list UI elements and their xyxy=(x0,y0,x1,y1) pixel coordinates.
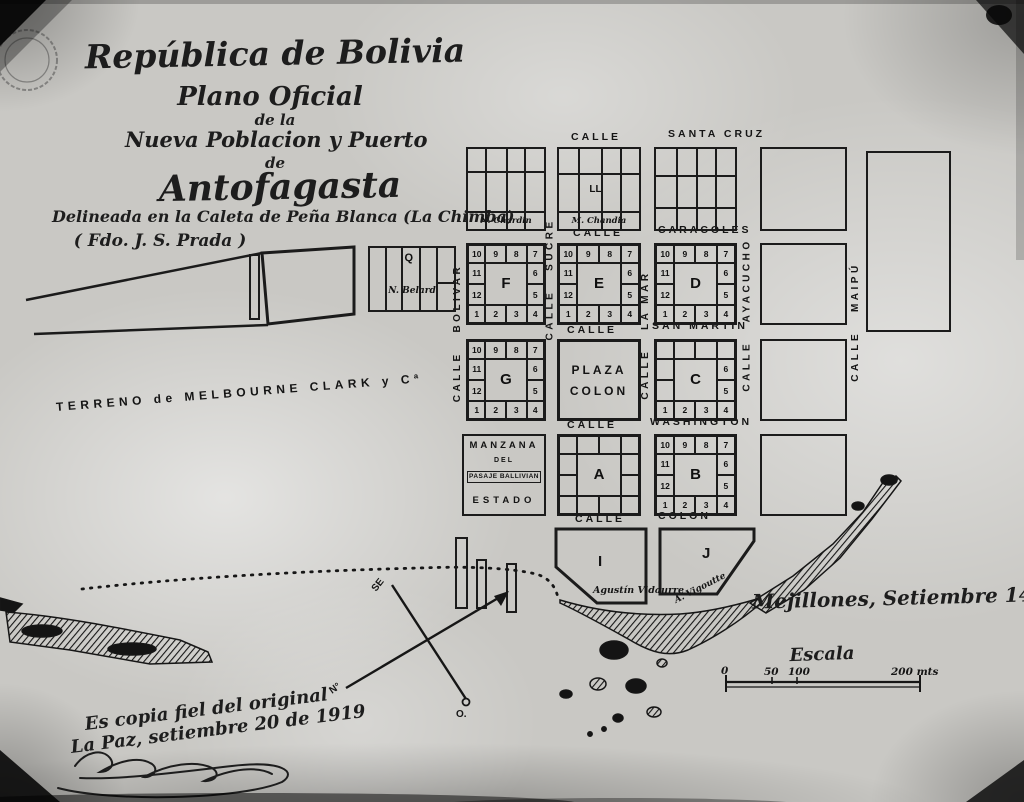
scale-tick-50: 50 xyxy=(764,666,779,678)
scale-tick-200: 200 mts xyxy=(890,666,939,678)
compass-label-o: O. xyxy=(456,709,467,720)
block-i-letter: I xyxy=(598,553,602,570)
peninsula-and-islets xyxy=(560,599,762,736)
map-linework: I J Agustín Vidaurre A. Vigoutte xyxy=(0,0,1024,802)
compass-rose: SE N° O. xyxy=(327,576,509,720)
scale-label: Escala xyxy=(772,642,873,666)
historic-map-antofagasta: República de Bolivia Plano Oficial de la… xyxy=(0,0,1024,802)
scale-bar: 0 50 100 200 mts xyxy=(721,665,939,692)
coast-rocks-southwest xyxy=(0,598,212,664)
owner-vidaurre-label: Agustín Vidaurre xyxy=(592,585,684,596)
compass-label-se: SE xyxy=(370,576,387,594)
scale-tick-100: 100 xyxy=(788,666,811,678)
blocks-i-j: I J Agustín Vidaurre A. Vigoutte xyxy=(556,529,754,606)
compass-label-n: N° xyxy=(327,681,343,696)
piers xyxy=(456,538,516,612)
signature-flourish xyxy=(58,752,288,797)
scale-tick-0: 0 xyxy=(721,665,729,677)
block-j-letter: J xyxy=(702,545,710,562)
west-lots-and-road xyxy=(26,247,354,334)
